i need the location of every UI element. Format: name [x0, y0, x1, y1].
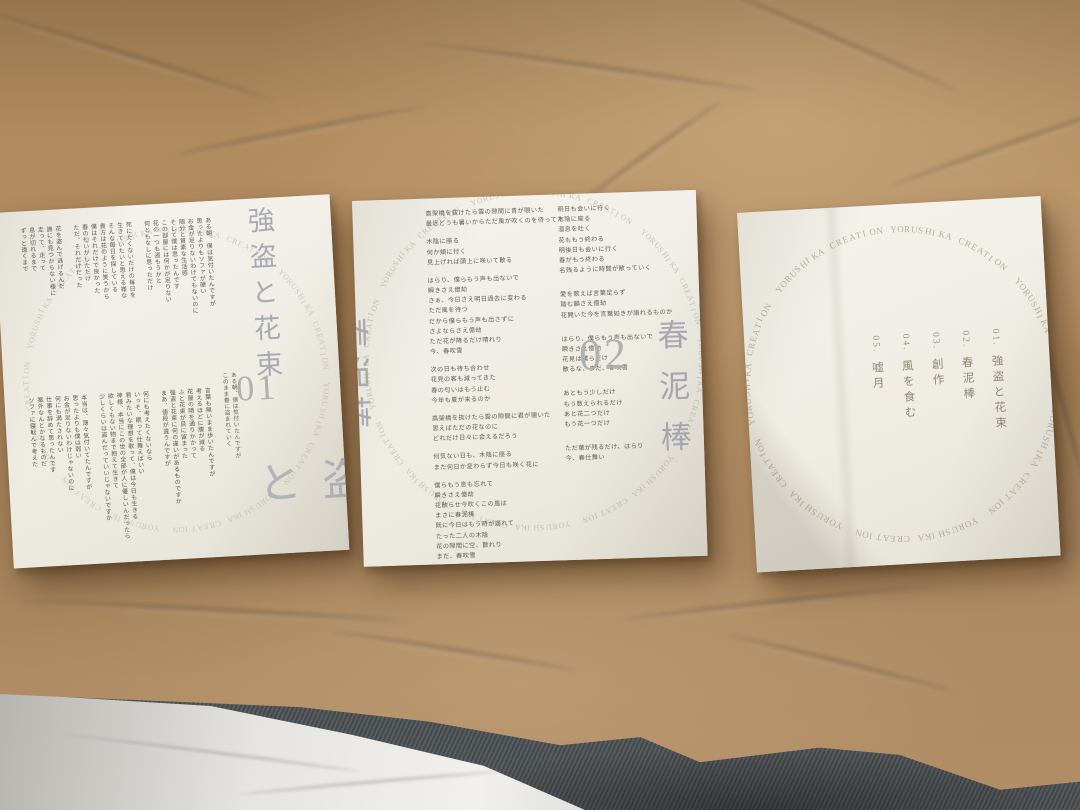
ring-char: A: [944, 230, 953, 241]
paper-crease: [700, 0, 960, 95]
song-title-repeat: 強盗と: [242, 451, 349, 556]
ring-char: A: [22, 386, 31, 392]
ring-char: N: [321, 363, 330, 370]
ring-char: A: [917, 533, 925, 544]
lyric-sheet-spring-thief: YORUSHIKA CREATION YORUSHIKA CREATION YO…: [352, 190, 708, 567]
lyrics-stanza: 高架橋を抜けたら雲の隙間に青が覗いた最近どうも暑いからただ風が吹くのを待ってた: [425, 205, 556, 230]
paper-crease: [0, 7, 274, 104]
song-title: 春泥棒: [647, 318, 697, 472]
photo-of-cd-lyric-sheets: YORUSHIKA CREATION YORUSHIKA CREATION YO…: [0, 0, 1080, 810]
lyrics-stanza: 木陰に座る何か頬に付く見上げれば頭上に咲いて散る: [426, 234, 557, 269]
ring-char: C: [745, 349, 756, 357]
track-item-title: 強盗と花束: [990, 354, 1006, 432]
lyrics-stanza: 何気ない日も、木陰に座るまた何日か変わらず今日も咲く花に: [433, 449, 564, 474]
track-item-number: 05.: [870, 335, 881, 353]
ring-char: A: [213, 230, 221, 240]
lyrics-stanza: 高架橋を抜けたら雲の隙間に君が覗いた思えばただの花なのにどれだけ日々に会えるだろ…: [432, 410, 563, 445]
lyrics-block-bottom: 言葉も無いまま歩いたんですが考えるほどに腹が減る花屋の隣を通りかかってふと花束が…: [36, 387, 219, 556]
ring-char: S: [918, 225, 924, 236]
track-item: 05.嘘月: [866, 335, 893, 491]
paper-crease: [723, 631, 958, 696]
ring-char: C: [904, 534, 910, 544]
ring-char: R: [897, 534, 903, 544]
track-number: 02: [578, 328, 630, 381]
lyrics-column-left: 高架橋を抜けたら雲の隙間に青が覗いた最近どうも暑いからただ風が吹くのを待ってた木…: [425, 205, 567, 566]
track-item-title: 春泥棒: [960, 356, 975, 403]
track-item: 01.強盗と花束: [986, 328, 1013, 484]
paper-crease: [331, 628, 579, 674]
track-item-title: 嘘月: [871, 361, 885, 393]
ring-char: A: [574, 192, 582, 202]
lyrics-stanza: はらり、僕らもう声も出ないで瞬きさえ億劫さぁ、今日さえ明日過去に変わるただ風を待…: [427, 272, 560, 358]
paper-crease: [172, 103, 429, 159]
paper-crease: [421, 40, 759, 94]
ring-char: O: [897, 224, 904, 234]
lyrics-stanza: 僕らもう息も忘れて瞬きさえ億劫花散らせ今吹くこの風はまさに春泥棒既に今日はもう時…: [434, 477, 567, 563]
paper-crease: [620, 584, 929, 623]
lyrics-block-top: ある朝、僕は気付いたんですが思ったよりもソファが硬いお金が足りないわけでもないの…: [59, 217, 219, 377]
ring-char: T: [318, 345, 328, 352]
track-item-title: 創作: [930, 358, 944, 390]
lyrics-stanza: 愛を歌えば言葉足らず踏む韻さえ億劫花開いた今を言葉如きが語れるものか: [560, 286, 689, 321]
track-item-number: 01.: [990, 329, 1001, 347]
tracklist: 01.強盗と花束02.春泥棒03.創作04.風を食む05.嘘月: [870, 328, 1012, 490]
lyric-sheet-robbery-and-bouquet: YORUSHIKA CREATION YORUSHIKA CREATION YO…: [0, 194, 349, 568]
ring-char: U: [320, 400, 330, 407]
ring-char: A: [882, 533, 889, 544]
track-item-number: 03.: [930, 332, 941, 350]
ring-char: I: [931, 228, 936, 238]
track-item: 03.創作: [926, 332, 953, 488]
track-item: 02.春泥棒: [956, 330, 983, 486]
ring-char: Y: [890, 224, 897, 234]
lyrics-stanza: 次の日も待ち合わせ花見の客も減ってきた春の匂いはもう止む今年も夏が来るのか: [430, 362, 561, 407]
lyrics-stanza: 明日も会いに行く木陰に座る溜息を吐く花ももう終わる明後日も会いに行く春がもう終わ…: [557, 201, 687, 276]
track-item-number: 02.: [960, 330, 971, 348]
track-item-title: 風を食む: [900, 359, 915, 422]
track-item-number: 04.: [900, 334, 911, 352]
ring-char: E: [890, 534, 896, 544]
ring-char: N: [876, 225, 884, 236]
paper-crease: [886, 96, 1080, 191]
tracklist-sheet: YORUSHIKA CREATION YORUSHIKA CREATION YO…: [737, 196, 1061, 572]
ring-char: R: [904, 224, 910, 234]
ring-char: H: [317, 412, 327, 420]
song-title: 強盗と花束: [239, 205, 288, 387]
ring-char: I: [318, 352, 327, 356]
paper-crease: [20, 598, 410, 625]
track-item: 04.風を食む: [896, 333, 923, 489]
ring-char: T: [22, 381, 31, 386]
track-number: 01: [235, 365, 279, 409]
